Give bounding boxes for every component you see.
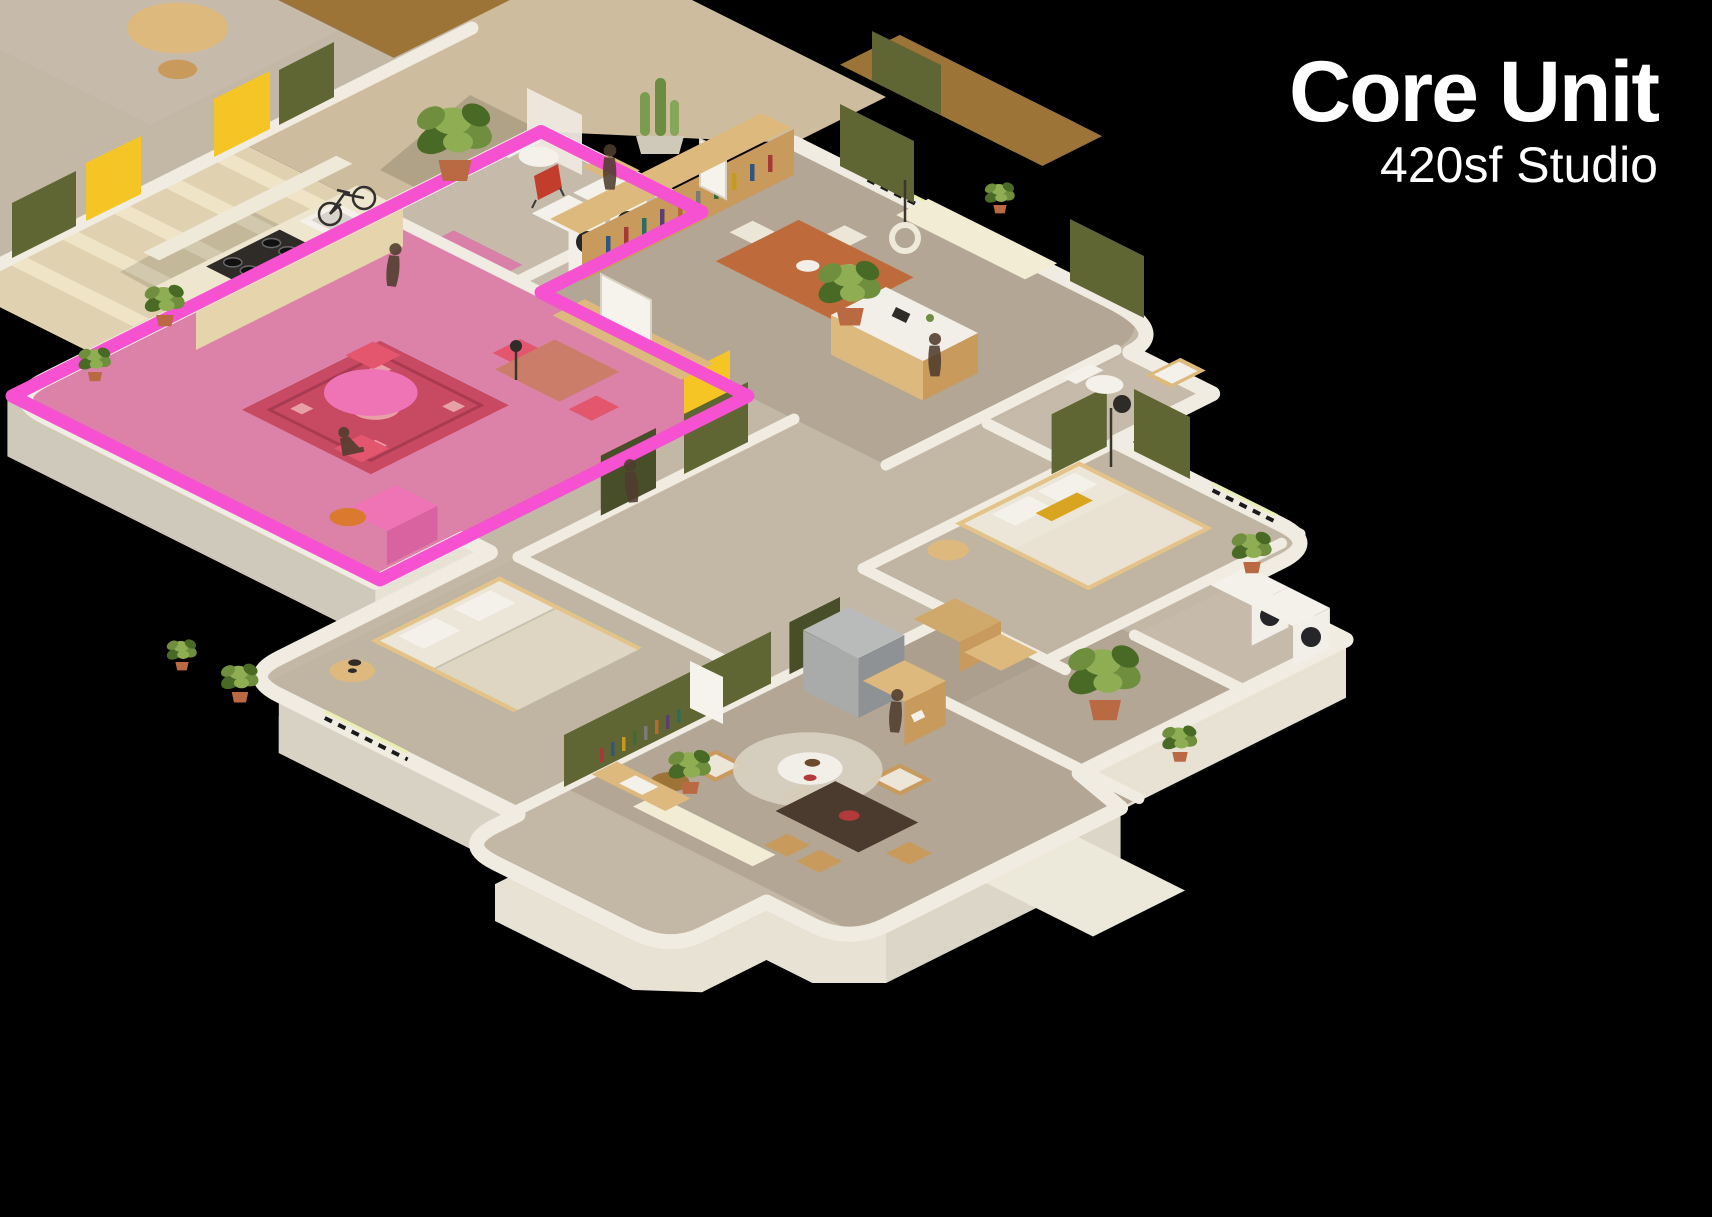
floor-lamp-shade: [1113, 395, 1131, 413]
page-subtitle: 420sf Studio: [1380, 137, 1658, 193]
isometric-floorplan-rendering: Core Unit 420sf Studio: [0, 0, 1712, 1217]
page-title: Core Unit: [1289, 44, 1659, 140]
person-courtyard: [603, 144, 616, 189]
person-kitchen-island: [928, 333, 941, 376]
island-plant: [926, 314, 934, 322]
page: Core Unit 420sf Studio: [0, 0, 1712, 1217]
